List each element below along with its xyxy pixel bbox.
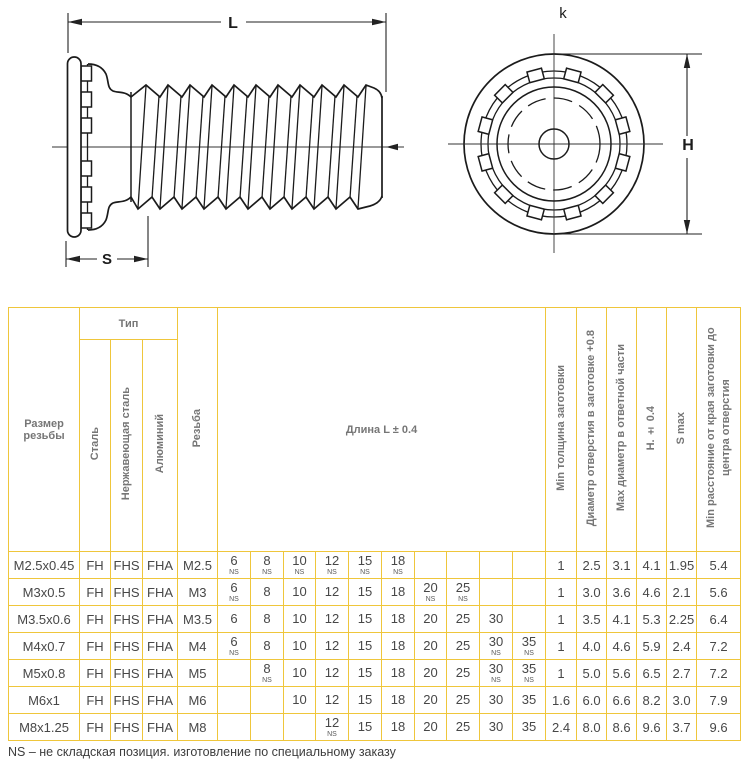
- min-thickness-cell: 1: [546, 552, 577, 579]
- length-cell: 8: [251, 633, 284, 660]
- h-cell: 5.9: [637, 633, 667, 660]
- max-diameter-cell: 3.1: [607, 552, 637, 579]
- length-cell: 25: [447, 633, 480, 660]
- thread-cell: M2.5: [178, 552, 218, 579]
- stainless-type-cell: FHS: [111, 687, 143, 714]
- length-cell: 15NS: [349, 552, 382, 579]
- steel-type-cell: FH: [80, 606, 111, 633]
- centerline-arrow-icon: [386, 144, 398, 150]
- length-cell: 35: [513, 714, 546, 741]
- s-max-cell: 3.0: [667, 687, 697, 714]
- stainless-type-cell: FHS: [111, 714, 143, 741]
- stainless-type-cell: FHS: [111, 660, 143, 687]
- aluminum-type-cell: FHA: [143, 687, 178, 714]
- length-cell: 18: [382, 714, 415, 741]
- length-cell: 18: [382, 579, 415, 606]
- length-cell: 18: [382, 633, 415, 660]
- thread-cell: M5: [178, 660, 218, 687]
- length-cell: 10: [284, 579, 316, 606]
- length-cell: [251, 714, 284, 741]
- min-thickness-cell: 1: [546, 606, 577, 633]
- length-cell: 6: [218, 606, 251, 633]
- length-cell: [284, 714, 316, 741]
- length-cell: 12: [316, 633, 349, 660]
- length-cell: 35NS: [513, 660, 546, 687]
- thread-cell: M6: [178, 687, 218, 714]
- header-type-aluminum: Алюминий: [143, 340, 178, 552]
- length-cell: 6NS: [218, 579, 251, 606]
- header-type-group: Тип: [80, 308, 178, 340]
- length-cell: 15: [349, 660, 382, 687]
- thread-cell: M8: [178, 714, 218, 741]
- length-dim-label: L: [228, 15, 238, 32]
- technical-drawing: L S: [0, 0, 748, 300]
- length-cell: 12: [316, 606, 349, 633]
- max-diameter-cell: 4.6: [607, 633, 637, 660]
- length-cell: 8NS: [251, 552, 284, 579]
- header-min-thickness: Min толщина заготовки: [546, 308, 577, 552]
- length-cell: [218, 714, 251, 741]
- length-cell: 30NS: [480, 660, 513, 687]
- length-cell: [415, 552, 447, 579]
- table-row: M6x1FHFHSFHAM610121518202530351.66.06.68…: [9, 687, 741, 714]
- length-cell: 10: [284, 606, 316, 633]
- h-cell: 4.1: [637, 552, 667, 579]
- header-type-stainless: Нержавеющая сталь: [111, 340, 143, 552]
- length-cell: 6NS: [218, 552, 251, 579]
- length-cell: 18: [382, 687, 415, 714]
- length-cell: 20NS: [415, 579, 447, 606]
- hole-diameter-cell: 6.0: [577, 687, 607, 714]
- steel-type-cell: FH: [80, 660, 111, 687]
- stainless-type-cell: FHS: [111, 633, 143, 660]
- length-cell: 25NS: [447, 579, 480, 606]
- header-type-steel: Сталь: [80, 340, 111, 552]
- length-cell: 8NS: [251, 660, 284, 687]
- length-cell: 25: [447, 660, 480, 687]
- max-diameter-cell: 4.1: [607, 606, 637, 633]
- min-distance-cell: 7.2: [697, 633, 741, 660]
- steel-type-cell: FH: [80, 687, 111, 714]
- min-distance-cell: 6.4: [697, 606, 741, 633]
- length-cell: [251, 687, 284, 714]
- length-cell: 15: [349, 633, 382, 660]
- min-distance-cell: 9.6: [697, 714, 741, 741]
- length-cell: 15: [349, 687, 382, 714]
- header-thread: Резьба: [178, 308, 218, 552]
- aluminum-type-cell: FHA: [143, 579, 178, 606]
- aluminum-type-cell: FHA: [143, 714, 178, 741]
- length-cell: [447, 552, 480, 579]
- stud-front-view: H k: [448, 5, 702, 253]
- thread-bottom-edge: [131, 196, 382, 209]
- max-diameter-cell: 6.6: [607, 687, 637, 714]
- length-cell: 12NS: [316, 552, 349, 579]
- s-max-cell: 2.1: [667, 579, 697, 606]
- header-thread-size: Размер резьбы: [9, 308, 80, 552]
- length-cell: 25: [447, 687, 480, 714]
- min-distance-cell: 5.4: [697, 552, 741, 579]
- collar-bottom-profile: [88, 197, 131, 230]
- length-cell: [218, 687, 251, 714]
- length-cell: 8: [251, 606, 284, 633]
- h-cell: 6.5: [637, 660, 667, 687]
- stainless-type-cell: FHS: [111, 552, 143, 579]
- length-cell: [480, 579, 513, 606]
- length-cell: 35: [513, 687, 546, 714]
- length-cell: 10: [284, 687, 316, 714]
- s-max-cell: 2.7: [667, 660, 697, 687]
- spec-table-body: M2.5x0.45FHFHSFHAM2.56NS8NS10NS12NS15NS1…: [9, 552, 741, 741]
- length-cell: 18: [382, 606, 415, 633]
- s-max-cell: 3.7: [667, 714, 697, 741]
- steel-type-cell: FH: [80, 633, 111, 660]
- thread-size-cell: M4x0.7: [9, 633, 80, 660]
- hole-diameter-cell: 3.5: [577, 606, 607, 633]
- min-thickness-cell: 1.6: [546, 687, 577, 714]
- thread-cell: M4: [178, 633, 218, 660]
- aluminum-type-cell: FHA: [143, 633, 178, 660]
- length-cell: 12: [316, 687, 349, 714]
- length-cell: 30NS: [480, 633, 513, 660]
- length-cell: [218, 660, 251, 687]
- aluminum-type-cell: FHA: [143, 606, 178, 633]
- length-cell: 20: [415, 687, 447, 714]
- height-dim-label: H: [682, 137, 694, 154]
- min-thickness-cell: 1: [546, 579, 577, 606]
- table-row: M5x0.8FHFHSFHAM58NS10121518202530NS35NS1…: [9, 660, 741, 687]
- s-max-cell: 2.25: [667, 606, 697, 633]
- h-cell: 8.2: [637, 687, 667, 714]
- stainless-type-cell: FHS: [111, 606, 143, 633]
- length-cell: 30: [480, 687, 513, 714]
- min-thickness-cell: 1: [546, 660, 577, 687]
- steel-type-cell: FH: [80, 714, 111, 741]
- h-cell: 9.6: [637, 714, 667, 741]
- hole-diameter-cell: 3.0: [577, 579, 607, 606]
- length-cell: 15: [349, 606, 382, 633]
- length-cell: 20: [415, 606, 447, 633]
- length-cell: 10: [284, 660, 316, 687]
- s-max-cell: 2.4: [667, 633, 697, 660]
- length-cell: 30: [480, 606, 513, 633]
- header-s-max: S max: [667, 308, 697, 552]
- k-label: k: [559, 5, 567, 22]
- s-max-cell: 1.95: [667, 552, 697, 579]
- table-row: M4x0.7FHFHSFHAM46NS810121518202530NS35NS…: [9, 633, 741, 660]
- length-cell: 30: [480, 714, 513, 741]
- min-distance-cell: 5.6: [697, 579, 741, 606]
- header-max-diameter: Max диаметр в ответной части: [607, 308, 637, 552]
- header-min-distance: Min расстояние от края заготовки до цент…: [697, 308, 741, 552]
- max-diameter-cell: 5.6: [607, 660, 637, 687]
- header-h-tolerance: H. ± 0.4: [637, 308, 667, 552]
- thread-cell: M3: [178, 579, 218, 606]
- max-diameter-cell: 8.6: [607, 714, 637, 741]
- length-cell: 35NS: [513, 633, 546, 660]
- min-distance-cell: 7.2: [697, 660, 741, 687]
- length-cell: 18NS: [382, 552, 415, 579]
- length-cell: 20: [415, 633, 447, 660]
- length-cell: 10: [284, 633, 316, 660]
- length-cell: 15: [349, 714, 382, 741]
- aluminum-type-cell: FHA: [143, 660, 178, 687]
- length-cell: 20: [415, 714, 447, 741]
- length-cell: 25: [447, 606, 480, 633]
- length-cell: 12NS: [316, 714, 349, 741]
- thread-cell: M3.5: [178, 606, 218, 633]
- length-cell: [480, 552, 513, 579]
- header-hole-diameter: Диаметр отверстия в заготовке +0.8: [577, 308, 607, 552]
- length-cell: [513, 579, 546, 606]
- thread-size-cell: M8x1.25: [9, 714, 80, 741]
- length-cell: 10NS: [284, 552, 316, 579]
- hole-diameter-cell: 5.0: [577, 660, 607, 687]
- stud-side-view: L S: [52, 13, 404, 268]
- shoulder-dim-label: S: [102, 251, 112, 268]
- stainless-type-cell: FHS: [111, 579, 143, 606]
- page: L S: [0, 0, 748, 767]
- header-length: Длина L ± 0.4: [218, 308, 546, 552]
- collar-top-profile: [88, 64, 131, 97]
- h-cell: 4.6: [637, 579, 667, 606]
- length-cell: [513, 606, 546, 633]
- hole-diameter-cell: 8.0: [577, 714, 607, 741]
- thread-size-cell: M3x0.5: [9, 579, 80, 606]
- min-thickness-cell: 2.4: [546, 714, 577, 741]
- h-cell: 5.3: [637, 606, 667, 633]
- table-row: M8x1.25FHFHSFHAM812NS1518202530352.48.08…: [9, 714, 741, 741]
- length-cell: 20: [415, 660, 447, 687]
- length-cell: 12: [316, 579, 349, 606]
- steel-type-cell: FH: [80, 579, 111, 606]
- min-thickness-cell: 1: [546, 633, 577, 660]
- thread-size-cell: M6x1: [9, 687, 80, 714]
- thread-size-cell: M2.5x0.45: [9, 552, 80, 579]
- hole-diameter-cell: 4.0: [577, 633, 607, 660]
- length-cell: 8: [251, 579, 284, 606]
- length-cell: 25: [447, 714, 480, 741]
- length-cell: 6NS: [218, 633, 251, 660]
- table-row: M3x0.5FHFHSFHAM36NS81012151820NS25NS13.0…: [9, 579, 741, 606]
- ns-footnote: NS – не складская позиция. изготовление …: [8, 745, 396, 759]
- thread-size-cell: M3.5x0.6: [9, 606, 80, 633]
- aluminum-type-cell: FHA: [143, 552, 178, 579]
- thread-size-cell: M5x0.8: [9, 660, 80, 687]
- table-row: M2.5x0.45FHFHSFHAM2.56NS8NS10NS12NS15NS1…: [9, 552, 741, 579]
- length-cell: 18: [382, 660, 415, 687]
- length-cell: [513, 552, 546, 579]
- min-distance-cell: 7.9: [697, 687, 741, 714]
- spec-table: Размер резьбы Тип Резьба Длина L ± 0.4 M…: [8, 307, 741, 741]
- flange-head: [68, 57, 82, 237]
- steel-type-cell: FH: [80, 552, 111, 579]
- length-cell: 12: [316, 660, 349, 687]
- length-cell: 15: [349, 579, 382, 606]
- table-row: M3.5x0.6FHFHSFHAM3.5681012151820253013.5…: [9, 606, 741, 633]
- max-diameter-cell: 3.6: [607, 579, 637, 606]
- dimension-L: L: [68, 13, 386, 92]
- hole-diameter-cell: 2.5: [577, 552, 607, 579]
